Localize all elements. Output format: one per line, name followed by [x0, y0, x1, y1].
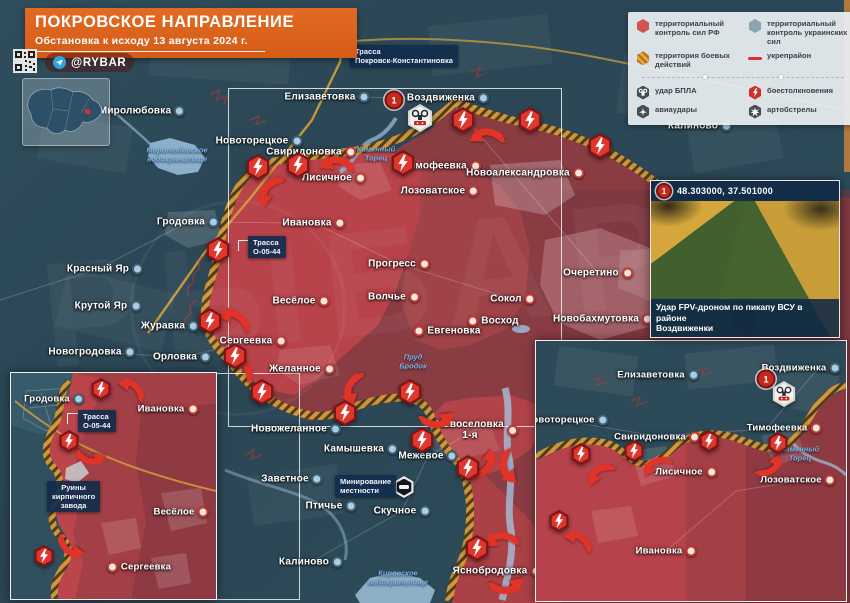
- map-subtitle: Обстановка к исходу 13 августа 2024 г.: [35, 35, 347, 47]
- uav-strike-icon: [406, 104, 434, 132]
- photo-inset: 1 48.303000, 37.501000 Удар FPV-дроном п…: [650, 180, 840, 338]
- legend-item: территориальный контроль сил РФ: [636, 19, 742, 46]
- road-pokrovsk-callout: Трасса Покровск-Константиновка: [350, 45, 458, 67]
- clash-icon: [285, 152, 311, 178]
- road-o0544-callout: Трасса О-05-44: [78, 410, 116, 432]
- channel-name: @RYBAR: [71, 57, 126, 69]
- clash-icon: [623, 440, 645, 462]
- map-legend: территориальный контроль сил РФ территор…: [628, 12, 850, 125]
- clash-icon: [205, 237, 231, 263]
- legend-item: артобстрелы: [748, 105, 850, 119]
- water-label: Миролюбовское водохранилище: [146, 146, 207, 163]
- combat-zone-icon: [636, 51, 650, 65]
- legend-item: укрепрайон: [748, 51, 850, 69]
- photo-marker: 1: [385, 91, 404, 110]
- legend-item: территориальный контроль украинских сил: [748, 19, 850, 46]
- clash-icon: [548, 510, 570, 532]
- telegram-icon: [53, 56, 66, 69]
- clash-icon: [409, 427, 435, 453]
- clash-icon: [197, 308, 223, 334]
- clash-icon: [455, 455, 481, 481]
- mine-icon: [393, 476, 415, 498]
- fortified-line-icon: [748, 51, 762, 65]
- photo-coordinates: 48.303000, 37.501000: [677, 186, 773, 196]
- clash-icon: [397, 379, 423, 405]
- clash-icon: [33, 545, 55, 567]
- clash-icon: [517, 107, 543, 133]
- map-canvas: РЫБАРЬ Миролюбовка Елизаветовка Воздвиже…: [0, 0, 850, 603]
- clash-icon: [58, 430, 80, 452]
- legend-item: боестолкновения: [748, 86, 850, 100]
- clash-legend-icon: [748, 86, 762, 100]
- ua-control-icon: [748, 19, 762, 33]
- photo-marker: 1: [656, 183, 672, 199]
- clash-icon: [332, 400, 358, 426]
- ukraine-locator-map: [22, 78, 110, 146]
- mining-callout: Минирование местности: [335, 475, 396, 497]
- clash-icon: [245, 154, 271, 180]
- artillery-legend-icon: [748, 105, 762, 119]
- uav-strike-legend-icon: [636, 86, 650, 100]
- rf-control-icon: [636, 19, 650, 33]
- clash-icon: [90, 378, 112, 400]
- photo-marker: 1: [757, 370, 776, 389]
- airstrike-legend-icon: [636, 105, 650, 119]
- clash-icon: [587, 133, 613, 159]
- clash-icon: [450, 107, 476, 133]
- water-label: Пруд Бродок: [399, 353, 427, 370]
- legend-item: авиаудары: [636, 105, 742, 119]
- clash-icon: [249, 379, 275, 405]
- title-banner: ПОКРОВСКОЕ НАПРАВЛЕНИЕ Обстановка к исхо…: [25, 8, 357, 58]
- callout-bracket: [67, 413, 78, 424]
- clash-icon: [698, 430, 720, 452]
- clash-icon: [222, 343, 248, 369]
- uav-strike-icon: [771, 381, 797, 407]
- legend-divider: [642, 77, 844, 80]
- inset-map-grodovka: Гродовка Ивановка Весёлое Сергеевка Трас…: [10, 372, 217, 600]
- brick-factory-callout: Руины кирпичного завода: [47, 481, 100, 512]
- clash-icon: [767, 432, 789, 454]
- photo-caption: Удар FPV-дроном по пикапу ВСУ в районе В…: [651, 299, 839, 337]
- road-o0544-callout: Трасса О-05-44: [248, 236, 286, 258]
- inset-map-vozdvizhenka: Елизаветовка Воздвиженка Новоторецкое Св…: [535, 340, 847, 602]
- banner-underline: [35, 51, 265, 52]
- legend-item: территория боевых действий: [636, 51, 742, 69]
- qr-code-icon: [13, 49, 37, 73]
- clash-icon: [464, 535, 490, 561]
- photo-header: 1 48.303000, 37.501000: [651, 181, 839, 201]
- channel-badge: @RYBAR: [45, 53, 134, 72]
- legend-item: удар БПЛА: [636, 86, 742, 100]
- map-title: ПОКРОВСКОЕ НАПРАВЛЕНИЕ: [35, 13, 347, 32]
- clash-icon: [390, 150, 416, 176]
- water-label: Кировское водохранилище: [368, 569, 428, 586]
- clash-icon: [570, 443, 592, 465]
